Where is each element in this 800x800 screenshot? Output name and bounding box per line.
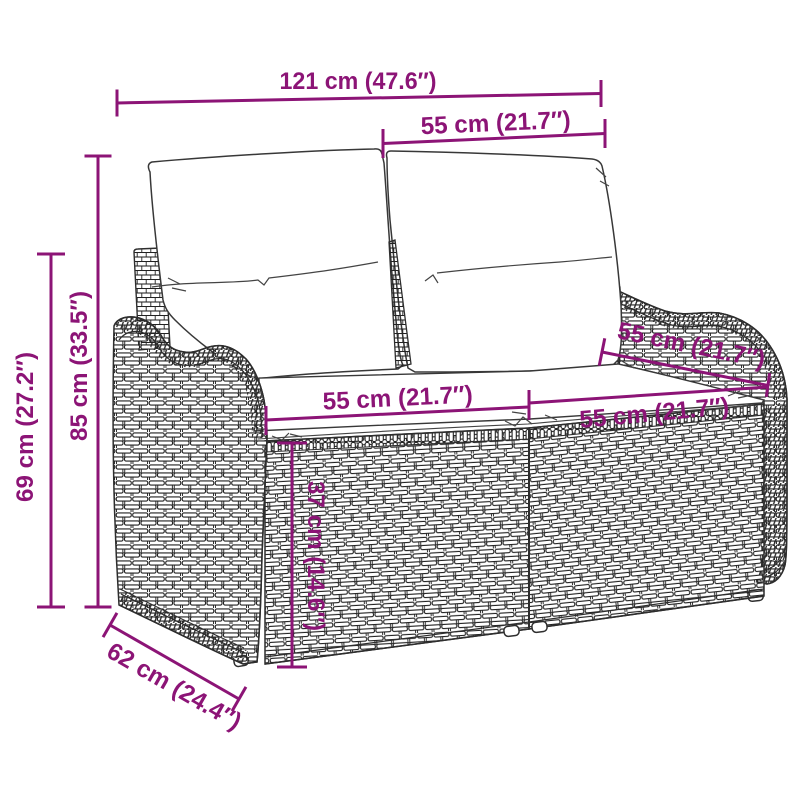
svg-text:69 cm (27.2″): 69 cm (27.2″) [12, 352, 39, 502]
svg-text:121 cm (47.6″): 121 cm (47.6″) [280, 68, 437, 95]
svg-text:85 cm (33.5″): 85 cm (33.5″) [66, 291, 93, 441]
svg-text:37 cm (14.6″): 37 cm (14.6″) [302, 481, 329, 631]
